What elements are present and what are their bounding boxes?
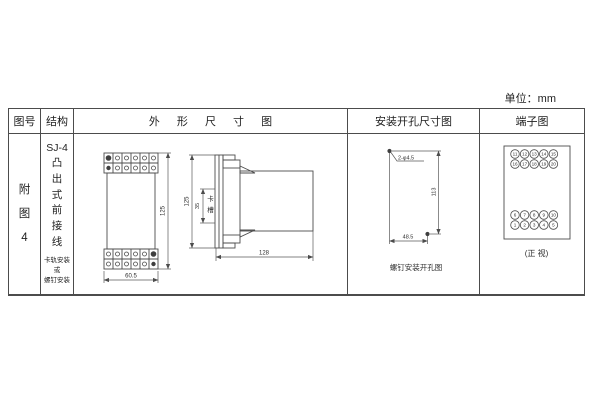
terminal-circles: 11 12 13 14 15 16 17 18 19 20 6 7 8 9 — [511, 150, 558, 230]
mounting-note: 卡轨安装 或 螺钉安装 — [44, 256, 70, 286]
terminal-number: 15 — [551, 152, 557, 157]
dim-hole-vertical: 113 — [432, 188, 438, 197]
terminal-number: 18 — [532, 162, 538, 167]
terminal-number: 19 — [541, 162, 547, 167]
dim-slot: 35 — [195, 203, 201, 209]
header-install-holes: 安装开孔尺寸图 — [348, 109, 480, 134]
terminal-number: 6 — [514, 213, 517, 218]
terminal-number: 20 — [551, 162, 557, 167]
screw-filled — [106, 166, 110, 170]
terminal-number: 11 — [513, 152, 518, 157]
cell-terminal-diagram: 11 12 13 14 15 16 17 18 19 20 6 7 8 9 — [480, 134, 584, 294]
figure-number: 附图4 — [18, 178, 31, 250]
unit-label: 单位：mm — [505, 90, 556, 106]
cell-structure: SJ-4 凸出式前接线 卡轨安装 或 螺钉安装 — [41, 134, 74, 294]
cell-figure-no: 附图4 — [9, 134, 41, 294]
header-figure-no: 图号 — [9, 109, 41, 134]
terminal-number: 1 — [514, 223, 517, 228]
dim-side-depth: 128 — [259, 251, 270, 257]
header-structure: 结构 — [41, 109, 74, 134]
terminal-number: 10 — [551, 213, 557, 218]
cell-install-drawing: 113 48.5 2-φ4.5 螺钉安装开孔图 — [348, 134, 480, 294]
drawing-sheet: 单位：mm 图号 结构 外 形 尺 寸 图 安装开孔尺寸图 端子图 附图4 SJ… — [0, 0, 600, 400]
model-name: SJ-4 — [46, 142, 68, 154]
mounting-hole — [387, 149, 391, 153]
front-view: 60.5 125 — [104, 153, 171, 283]
relay-body-side — [240, 171, 313, 231]
dim-front-height: 125 — [161, 205, 167, 216]
side-view: 125 35 128 — [185, 155, 314, 261]
mounting-hole — [425, 232, 429, 236]
terminal-number: 3 — [533, 223, 536, 228]
terminal-number: 9 — [543, 213, 546, 218]
structure-description: SJ-4 凸出式前接线 卡轨安装 或 螺钉安装 — [44, 142, 70, 286]
terminal-number: 16 — [512, 162, 518, 167]
slot-label: 卡槽 — [206, 194, 215, 216]
header-outline-dimensions: 外 形 尺 寸 图 — [74, 109, 348, 134]
terminal-number: 17 — [522, 162, 528, 167]
terminal-number: 2 — [523, 223, 526, 228]
screw-filled — [151, 262, 155, 266]
screw-filled — [106, 155, 112, 161]
install-holes-drawing: 113 48.5 2-φ4.5 螺钉安装开孔图 — [348, 134, 478, 295]
hole-callout: 2-φ4.5 — [398, 156, 414, 162]
structure-type: 凸出式前接线 — [51, 156, 63, 251]
install-caption: 螺钉安装开孔图 — [390, 262, 443, 272]
dim-side-height: 125 — [185, 196, 191, 207]
dim-hole-horizontal: 48.5 — [403, 235, 414, 241]
dimension-table: 图号 结构 外 形 尺 寸 图 安装开孔尺寸图 端子图 附图4 SJ-4 凸出式… — [8, 108, 585, 296]
terminal-number: 13 — [532, 152, 538, 157]
terminal-caption: (正 视) — [525, 248, 549, 258]
terminal-number: 14 — [541, 152, 547, 157]
dim-front-width: 60.5 — [125, 274, 137, 280]
cell-outline-drawing: 60.5 125 125 — [74, 134, 348, 294]
terminal-number: 8 — [533, 213, 536, 218]
header-terminal-diagram: 端子图 — [480, 109, 584, 134]
relay-body-front — [107, 173, 155, 249]
screw-filled — [151, 251, 157, 257]
top-wedge — [240, 166, 255, 173]
terminal-number: 4 — [543, 223, 546, 228]
terminal-number: 5 — [552, 223, 555, 228]
terminal-diagram: 11 12 13 14 15 16 17 18 19 20 6 7 8 9 — [480, 134, 584, 295]
terminal-number: 7 — [523, 213, 526, 218]
terminal-number: 12 — [522, 152, 528, 157]
drill-pattern: 113 48.5 2-φ4.5 — [387, 149, 441, 244]
